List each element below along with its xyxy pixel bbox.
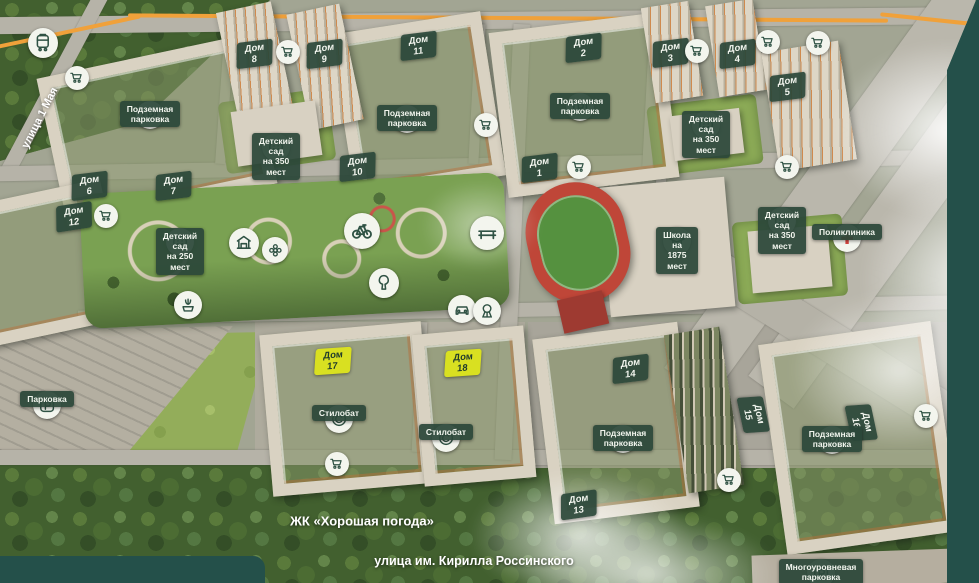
underground-parking-1-label: Подземная парковка [120,101,181,127]
house-label-4-label: Дом 4 [720,39,756,70]
kindergarten-250-label: Детский сад на 250 мест [156,228,204,275]
school-1875-label: Школа на 1875 мест [656,227,698,274]
bottom-panel [0,556,265,583]
polyclinic-label: Поликлиника [812,224,882,240]
house-label-14-label: Дом 14 [613,354,649,385]
underground-parking-3-label: Подземная парковка [550,93,611,119]
underground-parking-2-label: Подземная парковка [377,105,438,131]
house-label-11-label: Дом 11 [401,31,437,62]
house-label-6-label: Дом 6 [72,171,108,202]
underground-parking-4-label: Подземная парковка [593,425,654,451]
bench-icon [470,216,504,250]
bicycle-icon [344,213,380,249]
stylobate-2-label: Стилобат [419,424,473,440]
cart-icon [474,113,498,137]
house-label-17-label: Дом 17 [314,347,351,376]
flower-icon [262,237,288,263]
cart-icon [325,452,349,476]
masterplan-map: улица 1 Мая ЖК «Хорошая погода» улица им… [0,0,979,583]
house-label-13-label: Дом 13 [561,489,596,520]
masterplan-page: улица 1 Мая ЖК «Хорошая погода» улица им… [0,0,979,583]
car-icon [448,295,476,323]
cart-icon [756,30,780,54]
house-label-9-label: Дом 9 [307,39,343,70]
grill-icon [473,297,501,325]
house-label-12-label: Дом 12 [56,201,92,233]
pavilion-icon [229,228,259,258]
cart-icon [567,155,591,179]
house-label-15-label: Дом 15 [736,396,770,433]
house-label-18-label: Дом 18 [444,349,481,378]
cart-icon [775,155,799,179]
kindergarten-350-1-label: Детский сад на 350 мест [252,133,300,180]
kindergarten-350-2-label: Детский сад на 350 мест [682,111,730,158]
house-label-5-label: Дом 5 [770,72,806,103]
cart-icon [806,31,830,55]
house-label-2-label: Дом 2 [566,33,602,64]
cart-icon [65,66,89,90]
kindergarten-350-3-label: Детский сад на 350 мест [758,207,806,254]
cart-icon [94,204,118,228]
house-label-10-label: Дом 10 [340,152,376,183]
tree-icon [369,268,399,298]
fountain-icon [174,291,202,319]
cart-icon [914,404,938,428]
underground-parking-5-label: Подземная парковка [802,426,863,452]
house-label-8-label: Дом 8 [237,39,273,70]
stylobate-1-label: Стилобат [312,405,366,421]
house-label-7-label: Дом 7 [156,171,192,202]
surface-parking-label: Парковка [20,391,74,407]
cart-icon [717,468,741,492]
tram-icon [28,28,58,58]
house-label-1-label: Дом 1 [522,153,558,184]
cart-icon [685,39,709,63]
multilevel-parking-label: Многоуровневая парковка [779,559,864,583]
cart-icon [276,40,300,64]
house-label-3-label: Дом 3 [653,38,689,69]
